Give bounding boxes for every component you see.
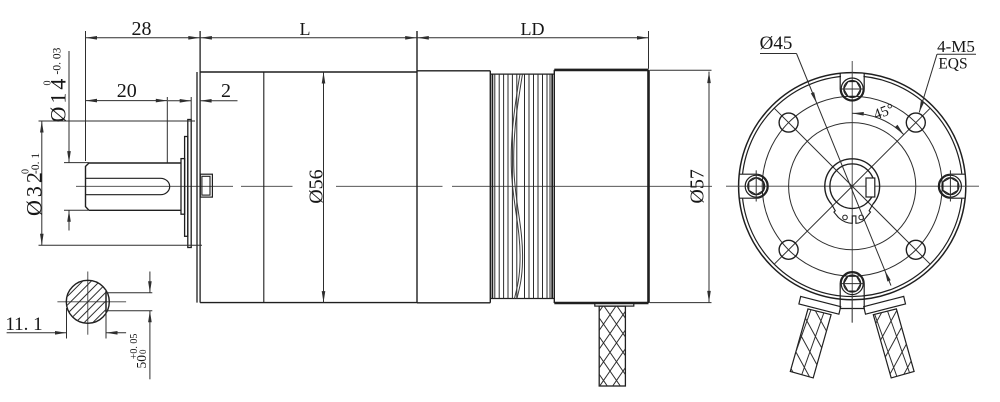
- svg-text:20: 20: [117, 80, 137, 102]
- svg-text:-0. 1: -0. 1: [30, 153, 42, 174]
- svg-text:11. 1: 11. 1: [5, 314, 42, 335]
- svg-text:0: 0: [43, 81, 54, 86]
- svg-text:-0. 03: -0. 03: [52, 47, 64, 74]
- svg-text:L: L: [300, 19, 311, 39]
- svg-text:Ø45: Ø45: [760, 33, 793, 54]
- svg-text:Ø56: Ø56: [306, 169, 328, 203]
- svg-text:+0. 05: +0. 05: [129, 334, 140, 360]
- svg-text:4-M5: 4-M5: [937, 37, 975, 56]
- svg-text:2: 2: [221, 80, 231, 102]
- svg-text:EQS: EQS: [938, 55, 967, 72]
- svg-text:28: 28: [132, 18, 152, 40]
- svg-text:Ø57: Ø57: [686, 169, 708, 203]
- svg-text:LD: LD: [521, 19, 545, 39]
- svg-text:0: 0: [138, 349, 148, 354]
- svg-text:Ø32: Ø32: [22, 169, 47, 216]
